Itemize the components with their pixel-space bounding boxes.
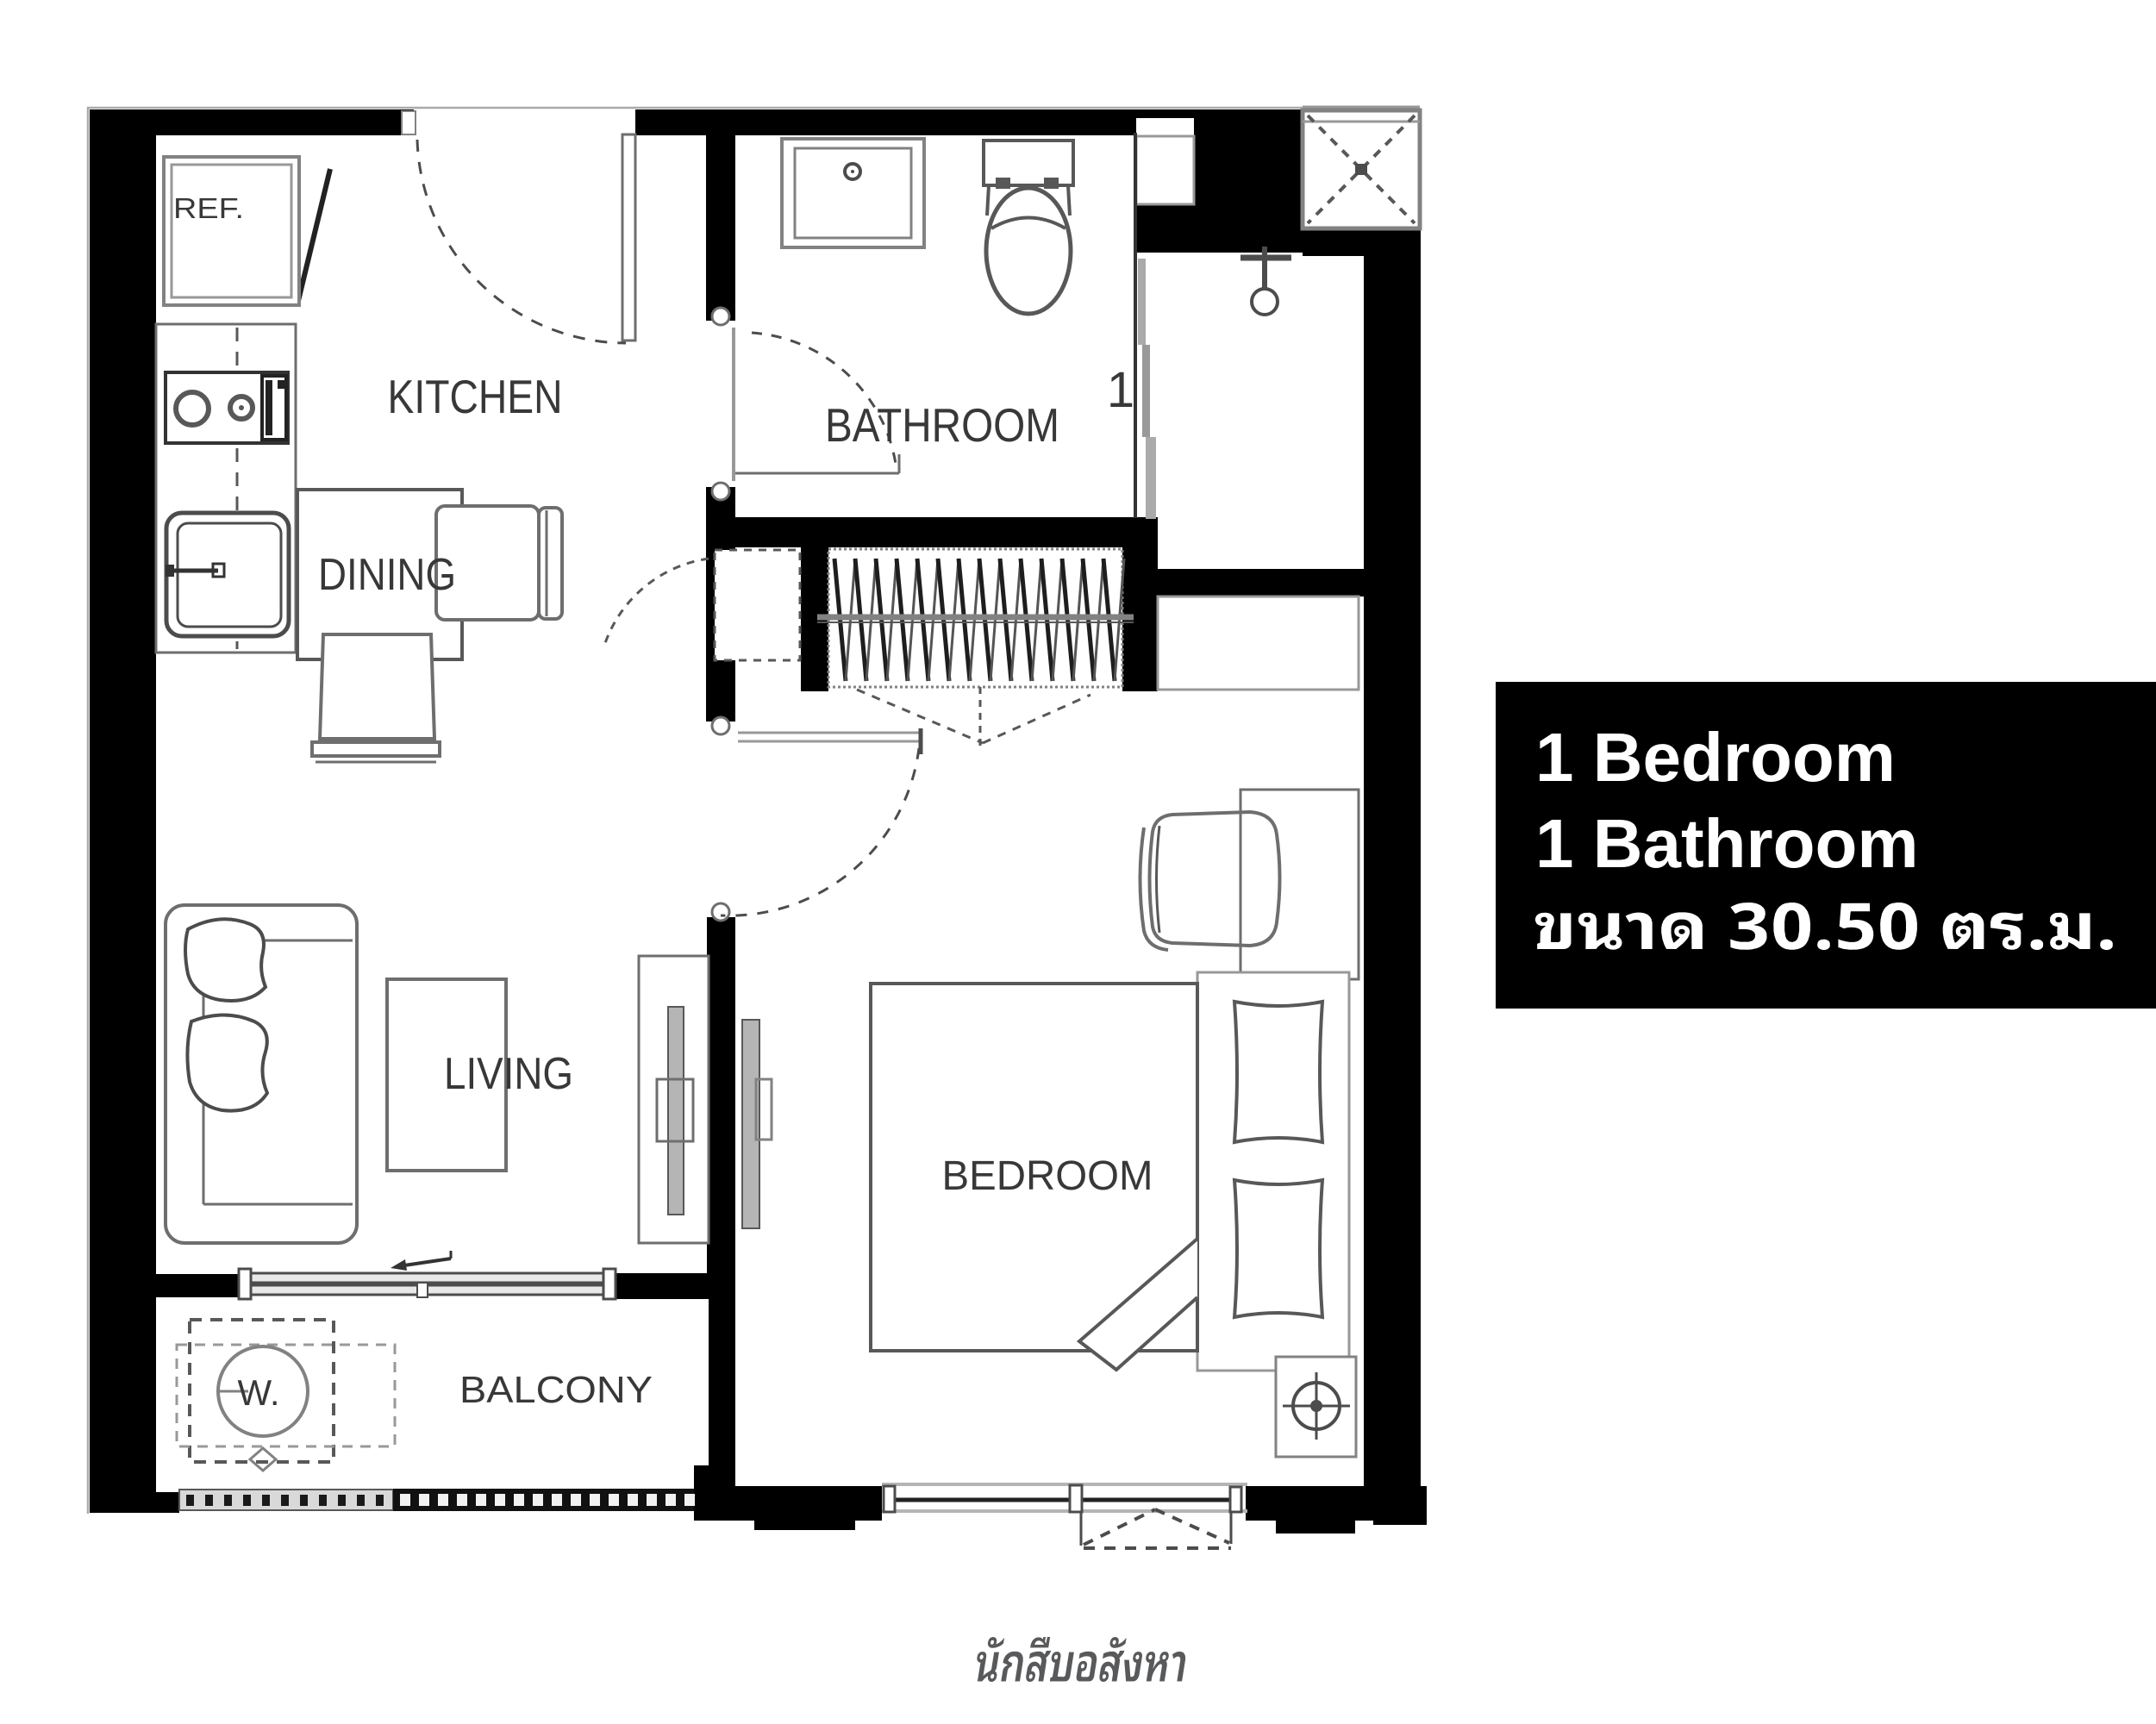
svg-text:BATHROOM: BATHROOM: [825, 398, 1059, 452]
svg-text:BALCONY: BALCONY: [459, 1369, 653, 1411]
svg-text:BEDROOM: BEDROOM: [942, 1153, 1153, 1199]
svg-text:KITCHEN: KITCHEN: [388, 370, 563, 423]
svg-text:1: 1: [1107, 362, 1134, 418]
svg-text:DINING: DINING: [318, 550, 456, 600]
svg-text:W.: W.: [238, 1372, 280, 1413]
svg-text:1 Bedroom: 1 Bedroom: [1535, 719, 1896, 796]
svg-text:LIVING: LIVING: [444, 1049, 573, 1099]
svg-text:REF.: REF.: [173, 192, 244, 224]
svg-text:1 Bathroom: 1 Bathroom: [1535, 805, 1919, 882]
